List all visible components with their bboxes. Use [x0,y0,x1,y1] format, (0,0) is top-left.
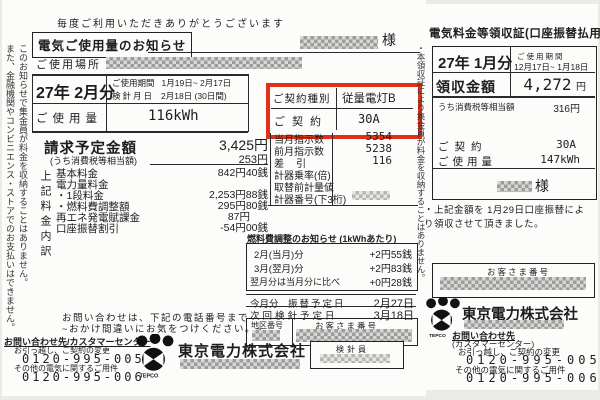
fuel-row-value: +0円28銭 [330,274,412,289]
name-underline [148,52,420,53]
table-line [32,103,248,104]
receipt-tax-value: 316円 [500,100,580,115]
reading-date-label: 検針月日 [112,91,154,101]
contract-type-value: 従量電灯B [342,90,396,106]
thanks-message: 毎度ご利用いただきありがとうございます [57,15,285,30]
address-redacted [106,57,302,69]
tepco-logo-left: TEPCO [132,334,178,380]
receipt-month: 27年 1月分 [438,52,512,73]
usage-value: 116kWh [148,108,199,124]
contract-value: 30A [358,112,380,126]
meter-reader-redacted [320,354,390,363]
phone2-left: 0120-995-006 [22,370,145,384]
meter-label: 計器番号(下3桁) [274,191,346,206]
receipt-amount-value: 4,272 [523,75,571,94]
phone2-right: 0120-995-006 [466,371,600,385]
table-line [32,74,33,132]
receipt-usage-label: ご使用量 [438,154,496,169]
table-line [336,88,337,130]
scanned-electricity-bills: このお知らせで集金員が料金を収納することはありません。 また、金融機関やコンビニ… [0,0,600,400]
table-line [32,131,248,133]
customer-name-redacted [300,36,378,49]
receipt-amount-label: 領収金額 [436,77,496,97]
company-name-left: 東京電力株式会社 [178,340,306,361]
contract-type-label: ご契約種別 [273,91,331,106]
company-address-redacted [180,359,300,369]
fuel-row-label: 翌月分は当月分に比べ [250,275,340,288]
contact-line2: ~おかけ間違いにお気をつけください。~ [62,321,263,335]
notice-title: 電気ご使用量のお知らせ [32,32,192,58]
receipt-title: 電気料金等領収証(口座振替払用) [429,25,600,41]
tepco-logo-text: TEPCO [429,333,446,339]
receipt-contract-label: ご契約 [438,139,488,154]
table-line [270,133,271,205]
receipt-period-value: 12月17日~ 1月18日 [514,61,588,73]
fuel-row-value: +2円55銭 [330,246,412,261]
table-line [32,74,248,76]
usage-label: ご使用量 [36,110,102,126]
receipt-name-redacted [497,181,532,192]
receipt-customer-no-redacted [440,277,586,290]
breakdown-side-label: 上記料金内訳 [37,170,53,275]
usage-period-block: ご使用期間1月19日~ 2月17日 検針月日2月18日 (30日間) [112,77,231,103]
receipt-contract-value: 30A [490,138,576,151]
meter-number-redacted [352,191,390,200]
table-line [271,108,413,109]
contract-label: ご契約 [274,113,328,129]
fuel-row-label: 3月(翌月)分 [254,261,304,275]
receipt-amount-unit: 円 [576,82,586,93]
receipt-note: ・上記金額を 1月29日口座振替により領収させて頂きました。 [424,204,594,232]
receipt-amount: 4,272 円 [500,75,586,95]
place-label: ご使用場所 [36,56,101,72]
tepco-logo-text: TEPCO [140,374,158,380]
billing-month: 27年 2月分 [36,79,115,103]
period-value: 1月19日~ 2月17日 [162,78,232,88]
fuel-row-label: 2月(当月)分 [254,247,304,261]
honorific-left: 様 [382,30,396,50]
breakdown-label: 口座振替割引 [56,221,119,236]
receipt-usage-value: 147kWh [490,153,580,166]
fuel-row-value: +2円83銭 [330,260,412,275]
period-label: ご使用期間 [112,78,155,88]
breakdown-value: 842円40銭 [150,165,268,180]
tepco-logo-icon: TEPCO [132,334,178,380]
honorific-right: 様 [535,176,549,196]
table-line [248,74,249,132]
company-address-redacted-right [464,320,564,329]
reading-date-value: 2月18日 (30日間) [161,91,227,101]
meter-value: 116 [336,154,392,167]
